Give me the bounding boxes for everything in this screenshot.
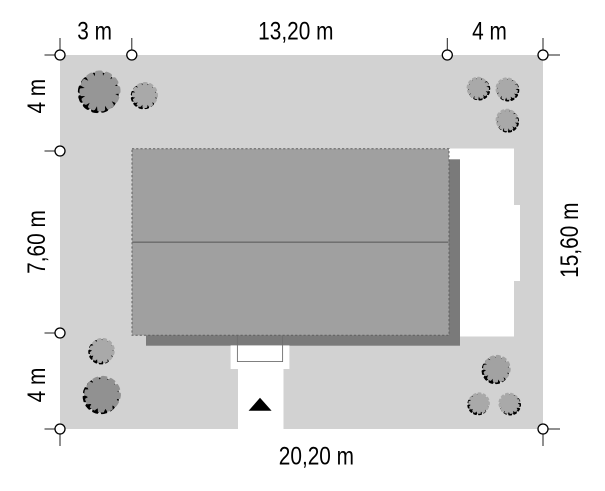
svg-text:7,60 m: 7,60 m — [22, 210, 50, 274]
svg-text:13,20 m: 13,20 m — [258, 16, 333, 44]
svg-text:4 m: 4 m — [472, 16, 507, 44]
svg-text:3 m: 3 m — [77, 16, 112, 44]
svg-text:4 m: 4 m — [22, 79, 50, 114]
svg-text:20,20 m: 20,20 m — [279, 441, 354, 469]
svg-text:15,60 m: 15,60 m — [555, 203, 583, 278]
svg-text:4 m: 4 m — [22, 368, 50, 403]
